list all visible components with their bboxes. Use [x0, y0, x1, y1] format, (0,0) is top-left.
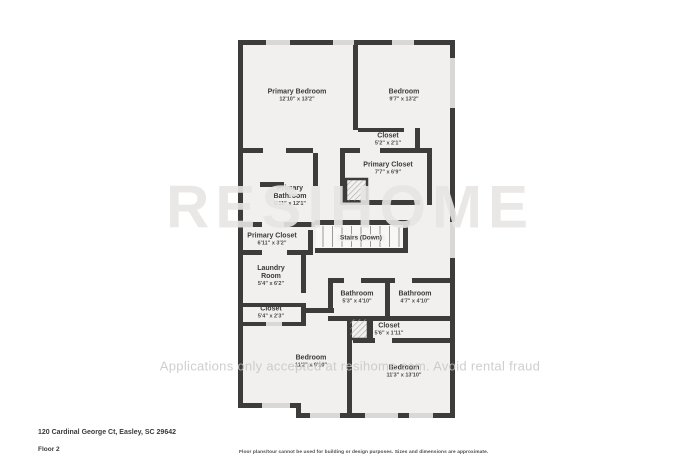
hatch-box-hall-icon [349, 318, 368, 339]
floor-label: Floor 2 [38, 446, 60, 453]
floorplan-page: { "colors": { "wall": "#3d3c3b", "room_f… [0, 0, 700, 467]
property-address: 120 Cardinal George Ct, Easley, SC 29642 [38, 429, 176, 436]
watermark-banner: Applications only accepted at resihome.c… [160, 359, 540, 374]
watermark-logo: RESIHOME [166, 173, 534, 242]
disclaimer-text: Floor plans/tour cannot be used for buil… [239, 450, 488, 455]
